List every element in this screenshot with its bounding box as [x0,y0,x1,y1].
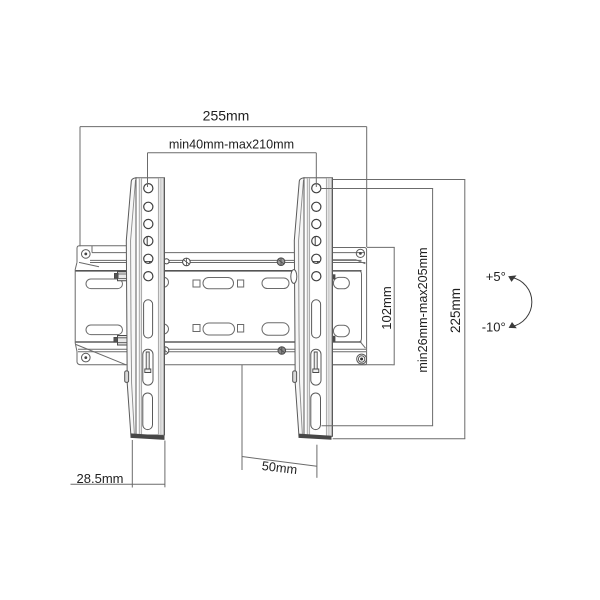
svg-text:102mm: 102mm [379,286,394,329]
svg-text:min40mm-max210mm: min40mm-max210mm [169,137,294,151]
svg-text:28.5mm: 28.5mm [77,471,124,486]
svg-text:255mm: 255mm [203,108,250,124]
svg-text:50mm: 50mm [261,458,298,477]
svg-text:225mm: 225mm [448,288,463,333]
svg-text:-10°: -10° [482,319,506,334]
svg-text:+5°: +5° [486,269,506,284]
svg-text:min26mm-max205mm: min26mm-max205mm [416,247,430,372]
